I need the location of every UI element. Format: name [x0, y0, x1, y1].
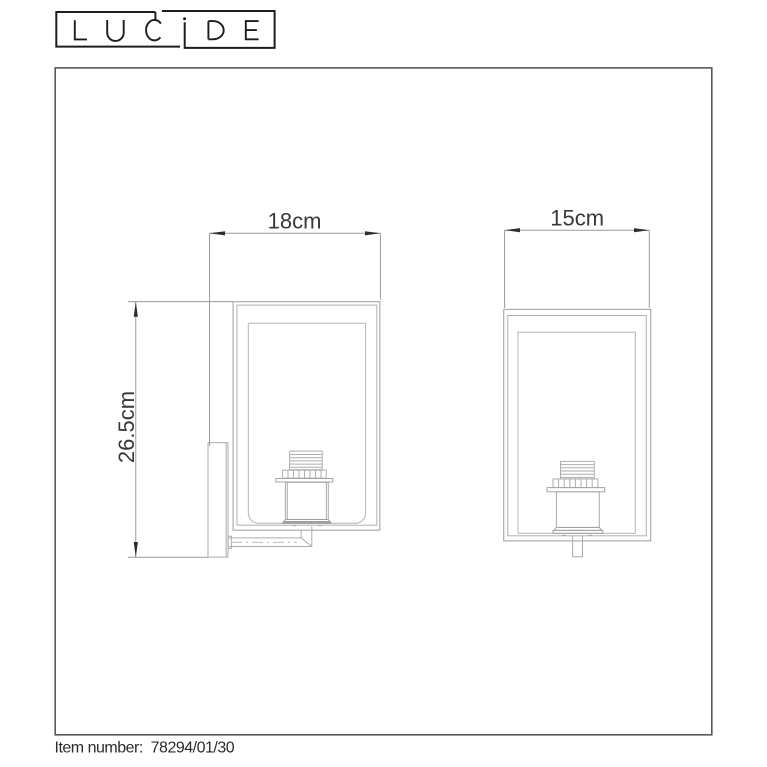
svg-text:Item number: 78294/01/30: Item number: 78294/01/30 — [55, 739, 235, 756]
svg-text:18cm: 18cm — [268, 208, 322, 233]
svg-text:26.5cm: 26.5cm — [114, 391, 139, 463]
svg-text:15cm: 15cm — [550, 205, 604, 230]
